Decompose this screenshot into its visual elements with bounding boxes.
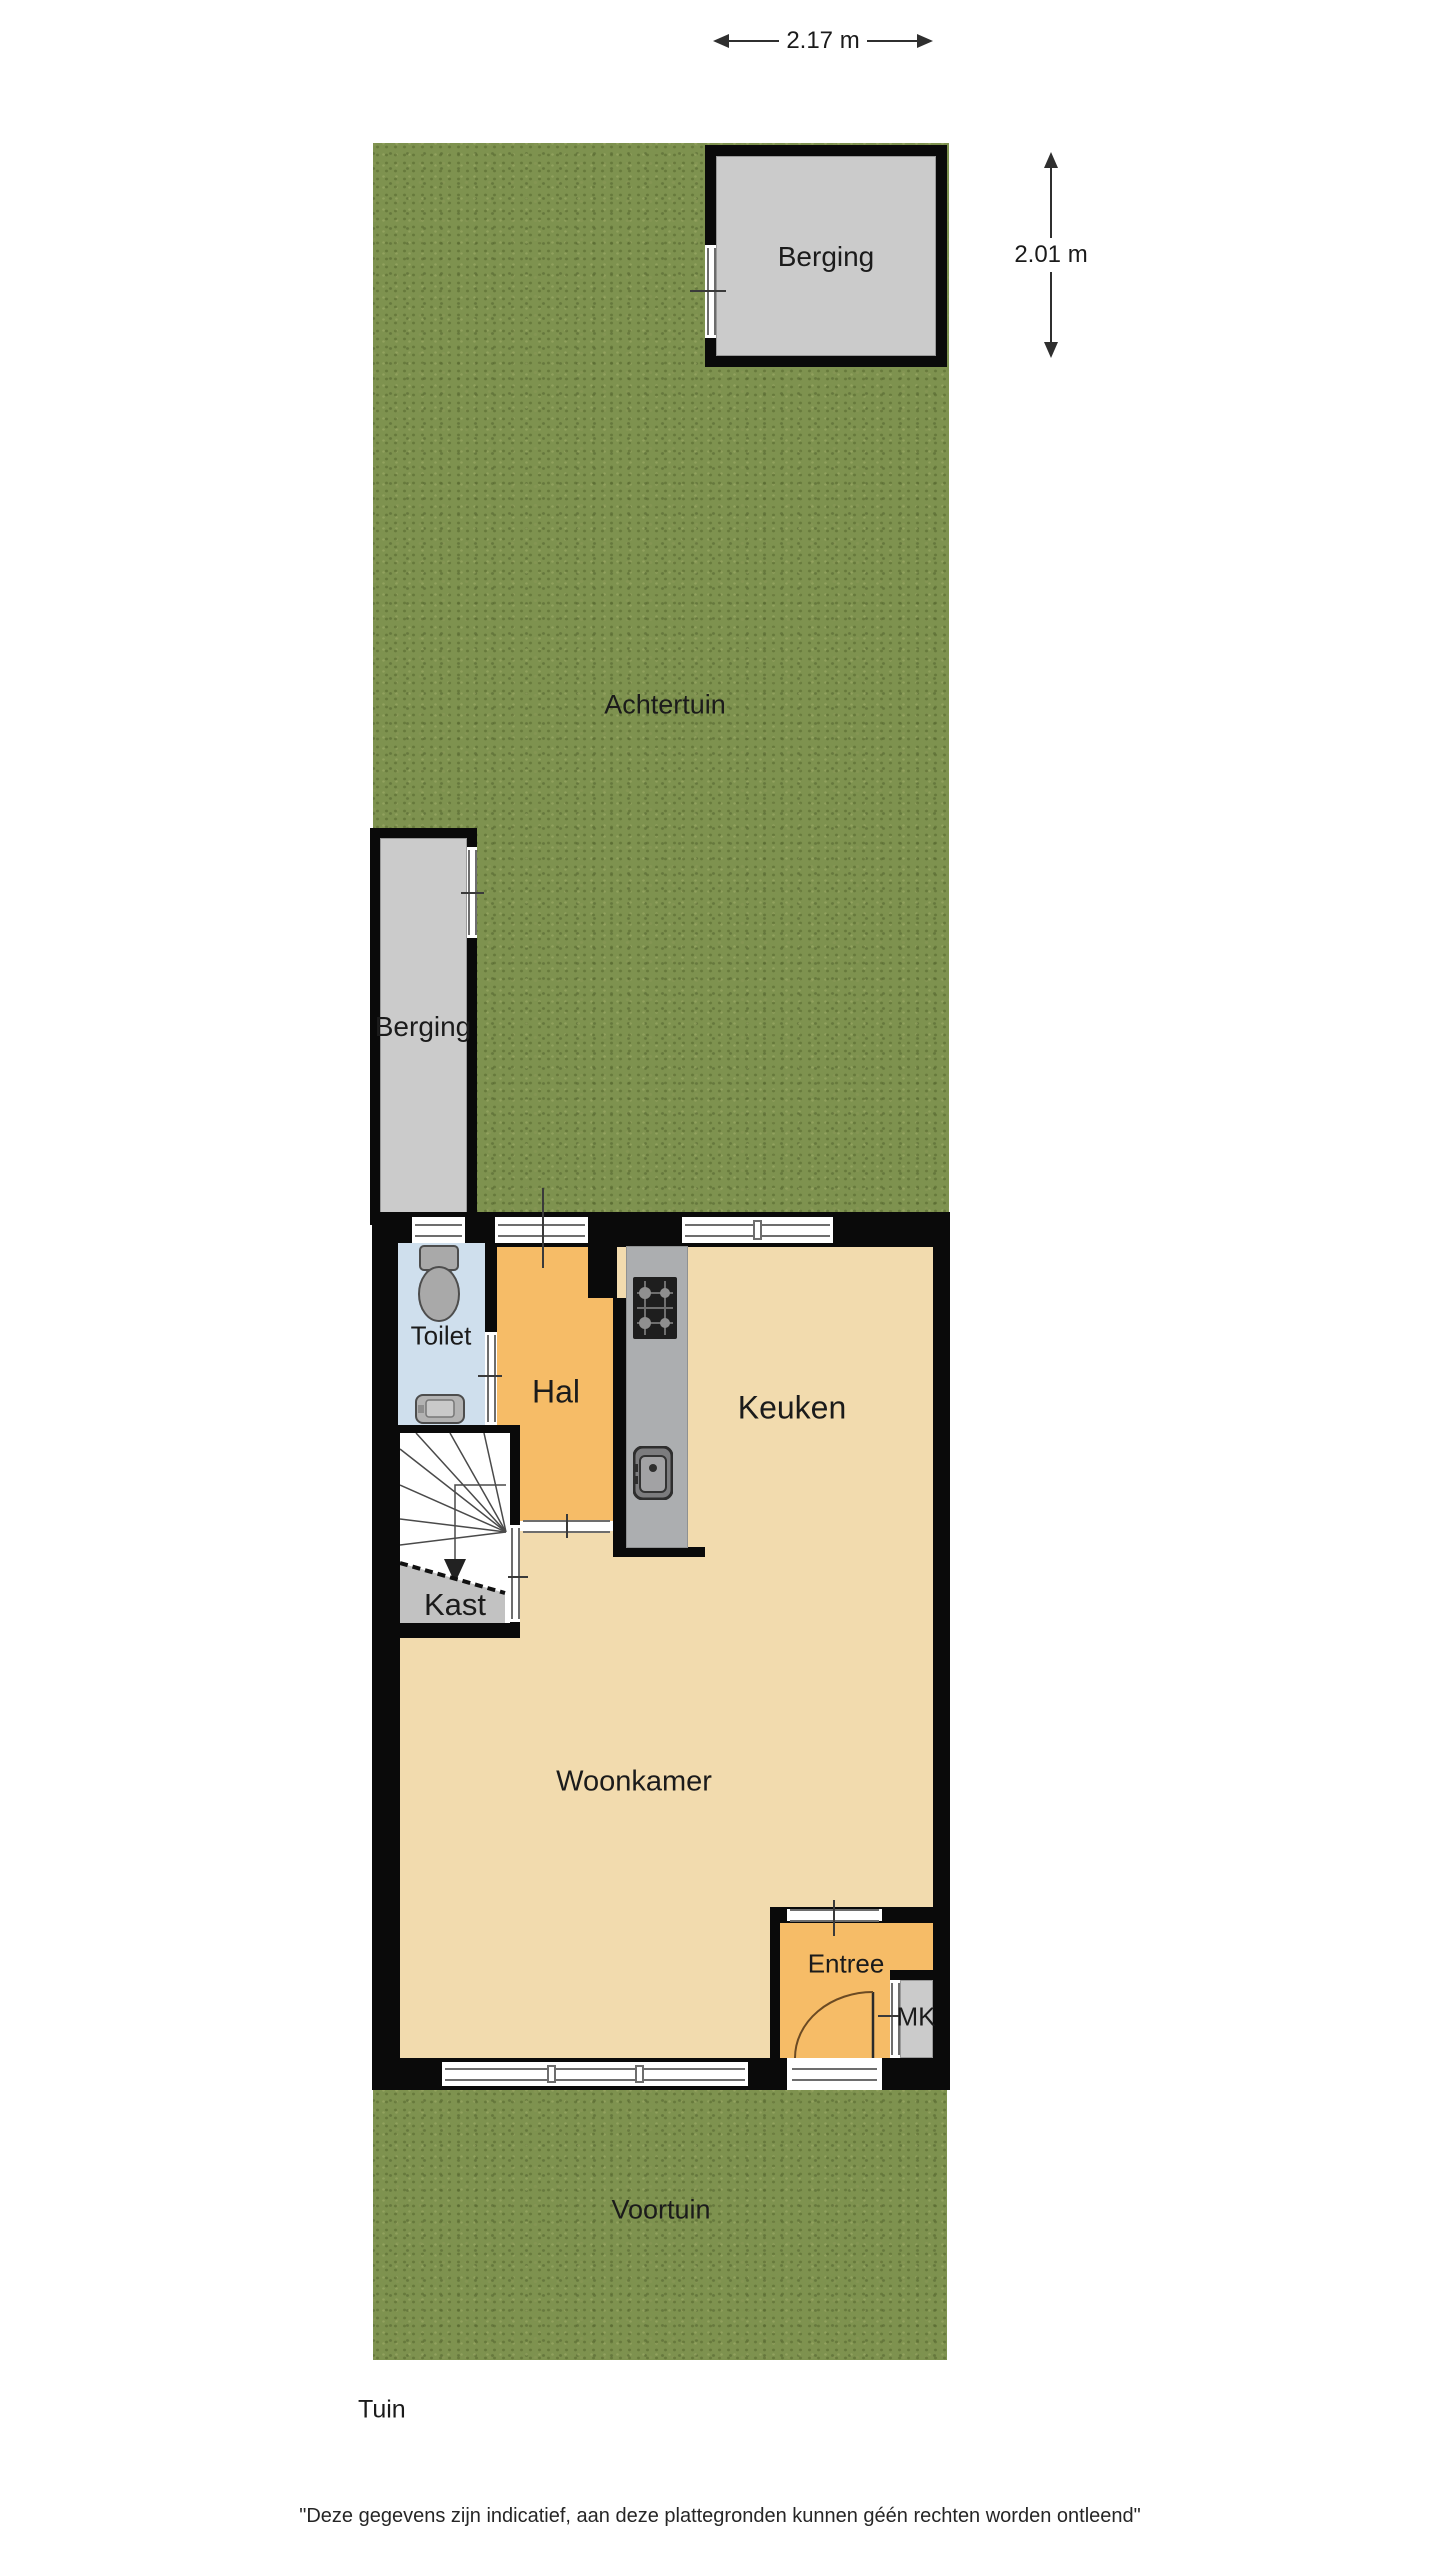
threshold-lines — [792, 2068, 877, 2081]
closet-door — [510, 1525, 520, 1622]
meter-closet-top-wall — [890, 1970, 938, 1980]
entry-left-wall — [770, 1907, 780, 2058]
width-dimension-label: 2.17 m — [779, 27, 866, 55]
dimension-line — [1050, 272, 1052, 342]
arrow-right-icon — [917, 34, 933, 48]
dimension-line — [1050, 168, 1052, 238]
entry-window-tick — [833, 1900, 835, 1936]
kitchen-window — [682, 1217, 833, 1243]
window-mullion — [635, 2065, 644, 2083]
dimension-line — [867, 40, 917, 42]
shed-top-door-tick — [690, 290, 726, 292]
room-label-toilet: Toilet — [411, 1321, 472, 1352]
room-label-entry: Entree — [808, 1949, 885, 1980]
toilet-door-tick — [478, 1375, 502, 1377]
hall-kitchen-wall-upper — [588, 1213, 617, 1298]
door-frame-lines — [487, 1335, 496, 1422]
height-dimension-label: 2.01 m — [1009, 238, 1092, 272]
toilet-right-wall — [485, 1243, 497, 1335]
front-door-opening — [787, 2058, 882, 2090]
arrow-down-icon — [1044, 342, 1058, 358]
toilet-window — [412, 1217, 465, 1243]
room-label-front-garden: Voortuin — [611, 2195, 710, 2226]
room-label-kitchen: Keuken — [738, 1390, 847, 1427]
arrow-up-icon — [1044, 152, 1058, 168]
hall-living-door-tick — [566, 1514, 568, 1538]
dimension-line — [729, 40, 779, 42]
room-label-hall: Hal — [532, 1374, 580, 1411]
stove-icon — [633, 1277, 677, 1339]
floorplan-page: 2.17 m 2.01 m Berging Achtertuin Berging… — [0, 0, 1440, 2560]
closet-door-tick — [508, 1576, 528, 1578]
shed-left-door-tick — [461, 892, 484, 894]
width-dimension: 2.17 m — [713, 29, 933, 53]
window-mullion — [547, 2065, 556, 2083]
room-label-closet: Kast — [424, 1587, 486, 1623]
window-glass-lines — [445, 2068, 745, 2081]
window-glass-lines — [415, 1224, 462, 1237]
room-label-shed-top: Berging — [778, 241, 875, 273]
disclaimer-text: "Deze gegevens zijn indicatief, aan deze… — [0, 2505, 1440, 2528]
door-frame-lines — [511, 1528, 520, 1619]
height-dimension: 2.01 m — [1039, 152, 1063, 358]
toilet-icon — [415, 1245, 463, 1323]
room-label-living-room: Woonkamer — [556, 1766, 712, 1799]
kitchen-living-wall-stub — [613, 1547, 705, 1557]
plan-title: Tuin — [358, 2396, 406, 2425]
hand-basin-icon — [415, 1394, 465, 1424]
room-label-shed-left: Berging — [375, 1011, 472, 1043]
arrow-left-icon — [713, 34, 729, 48]
kitchen-sink-icon — [633, 1446, 673, 1500]
window-mullion — [753, 1220, 762, 1240]
room-label-meter-closet: MK — [897, 2002, 936, 2033]
living-room-window — [442, 2062, 748, 2086]
toilet-door — [485, 1332, 497, 1425]
back-door-leaf-line — [542, 1188, 544, 1268]
front-door-swing-icon — [789, 1988, 879, 2058]
room-label-back-garden: Achtertuin — [604, 690, 726, 721]
hall-kitchen-wall-lower — [613, 1298, 627, 1557]
